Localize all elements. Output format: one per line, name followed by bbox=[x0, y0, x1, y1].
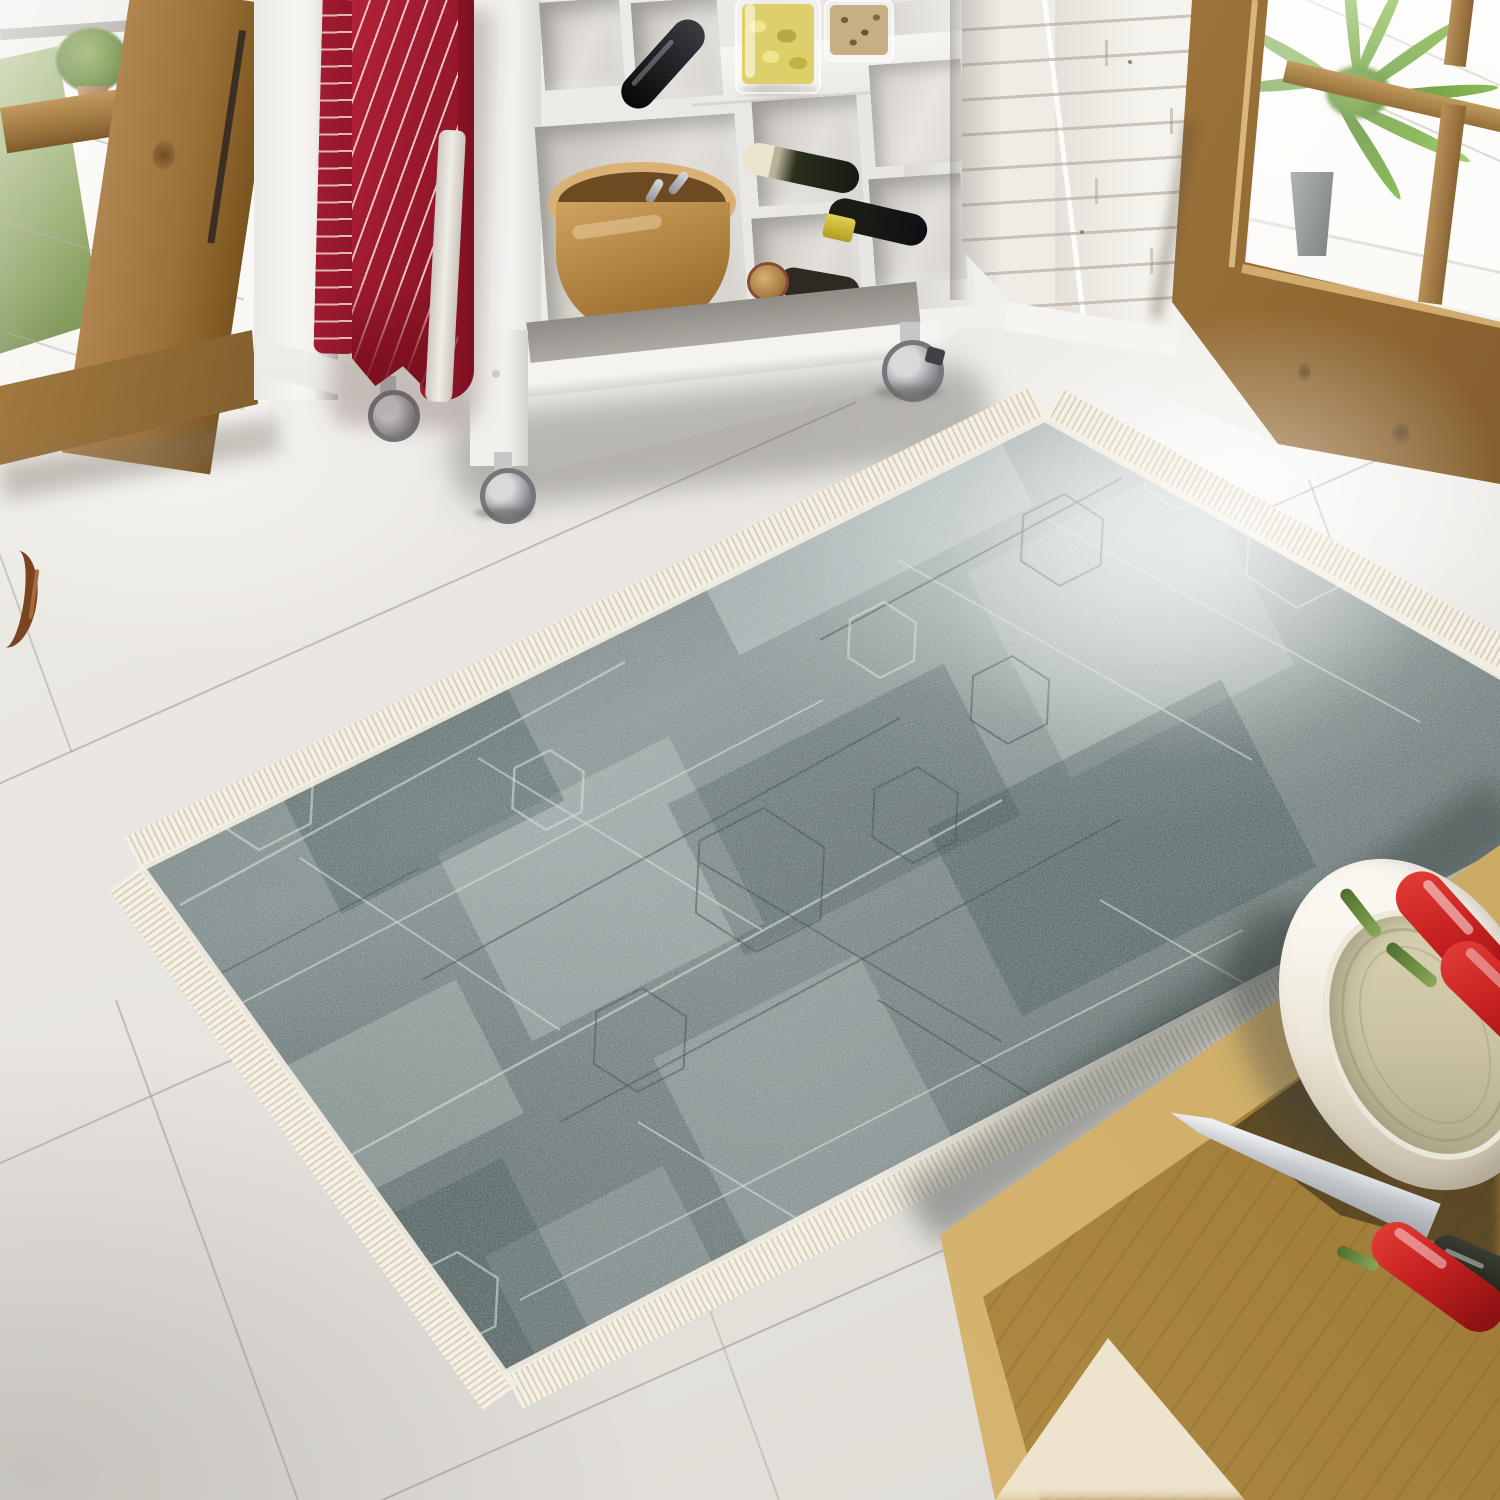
kitchen-scene bbox=[0, 0, 1500, 1500]
chili-bowl bbox=[0, 0, 1500, 1500]
